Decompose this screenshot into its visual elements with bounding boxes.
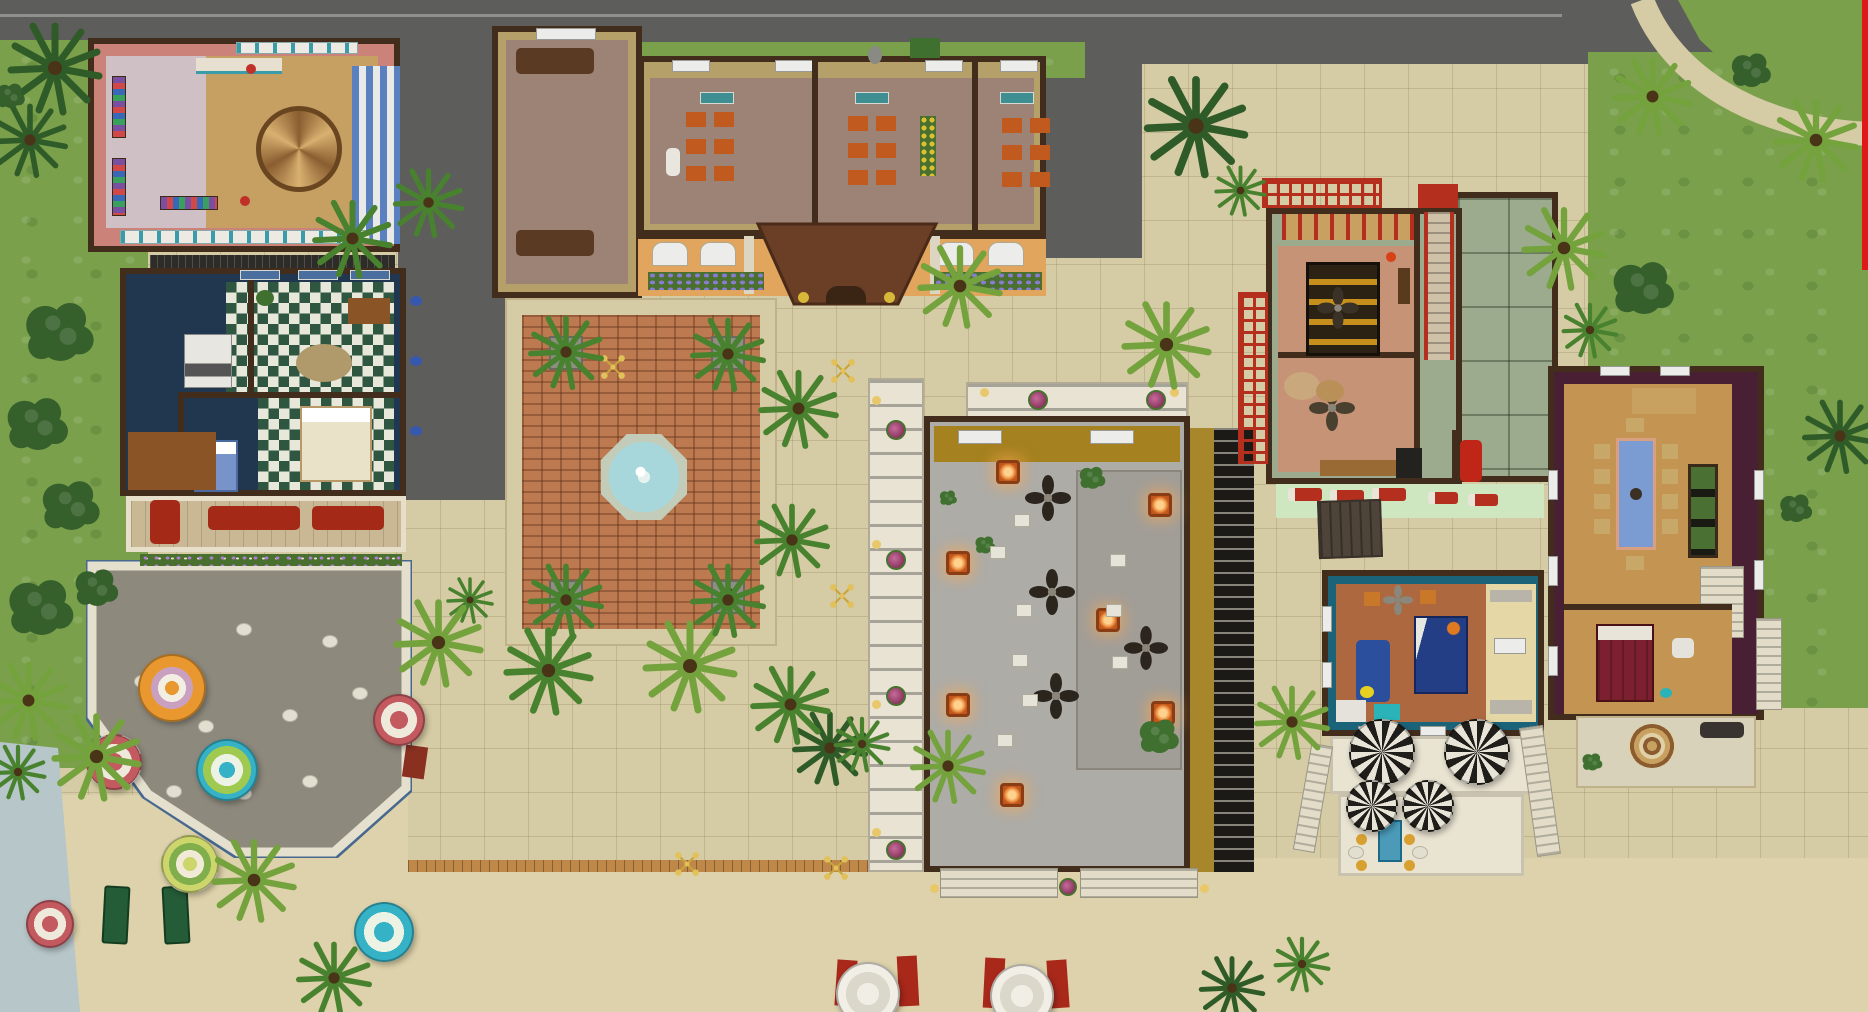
cafe-table[interactable]: [302, 775, 318, 788]
red-trellis[interactable]: [1262, 178, 1382, 208]
window: [775, 60, 813, 72]
flower-ball[interactable]: [1146, 390, 1166, 410]
gallery-chairs[interactable]: [876, 116, 896, 196]
window: [1754, 470, 1764, 500]
flower-ball[interactable]: [1028, 390, 1048, 410]
clothing-rack[interactable]: [112, 158, 126, 216]
dark-plant[interactable]: [1025, 475, 1071, 521]
teal-decor: [1660, 688, 1672, 698]
interior-staircase[interactable]: [1424, 212, 1454, 360]
flower-pot-yellow[interactable]: [798, 292, 809, 303]
palm-tree[interactable]: [1197, 953, 1267, 1012]
patio-umbrella-teal[interactable]: [196, 739, 258, 801]
dining-table[interactable]: [1012, 654, 1028, 667]
cafe-table[interactable]: [352, 687, 368, 700]
wave-rug: [1414, 616, 1468, 694]
entrance-steps[interactable]: [940, 868, 1058, 898]
palm-tree[interactable]: [391, 165, 466, 240]
dining-table[interactable]: [1110, 554, 1126, 567]
gold-lamppost[interactable]: [818, 850, 854, 886]
trash-can[interactable]: [868, 46, 882, 64]
round-rug: [1628, 724, 1676, 768]
picture-frames: [1688, 464, 1718, 558]
dining-table[interactable]: [1014, 514, 1030, 527]
exterior-staircase[interactable]: [1214, 428, 1254, 872]
white-armchair[interactable]: [1672, 638, 1694, 658]
potted-plant[interactable]: [936, 486, 960, 510]
flower-pot-yellow[interactable]: [884, 292, 895, 303]
gold-lamppost[interactable]: [824, 578, 860, 614]
bush[interactable]: [1131, 709, 1186, 764]
glow-floor-lamp[interactable]: [946, 693, 970, 717]
dining-chair[interactable]: [1626, 418, 1644, 432]
palm-tree[interactable]: [391, 595, 486, 690]
cafe-table[interactable]: [236, 623, 252, 636]
round-rug: [1284, 372, 1320, 400]
cabinet[interactable]: [1632, 388, 1696, 414]
flower-ball[interactable]: [886, 550, 906, 570]
bush[interactable]: [1600, 246, 1685, 331]
window: [1420, 726, 1446, 736]
orange-chair[interactable]: [1364, 592, 1380, 606]
road-center-line: [0, 14, 1562, 17]
gold-chair[interactable]: [1404, 860, 1415, 871]
flower-ball[interactable]: [886, 840, 906, 860]
courtyard-palm[interactable]: [526, 312, 606, 392]
gallery-chairs[interactable]: [1002, 118, 1022, 198]
flower-ball[interactable]: [886, 686, 906, 706]
blue-decor: [410, 426, 422, 436]
kitchen-counter[interactable]: [1320, 460, 1406, 476]
glow-floor-lamp[interactable]: [996, 460, 1020, 484]
gallery-chairs[interactable]: [1030, 118, 1050, 198]
palm-tree[interactable]: [1213, 163, 1268, 218]
bush[interactable]: [0, 76, 30, 116]
beach-lounger-green[interactable]: [162, 885, 191, 944]
dining-table[interactable]: [1022, 694, 1038, 707]
red-trellis[interactable]: [1238, 292, 1268, 464]
fridge[interactable]: [1396, 448, 1422, 478]
red-lamp[interactable]: [1386, 252, 1396, 262]
cafe-table[interactable]: [1348, 846, 1364, 859]
display-case[interactable]: [236, 42, 358, 54]
blue-decor: [410, 356, 422, 366]
palm-tree[interactable]: [1272, 934, 1332, 994]
palm-tree[interactable]: [756, 366, 841, 451]
palm-tree[interactable]: [748, 662, 833, 747]
path-light: [872, 700, 881, 709]
statue[interactable]: [666, 148, 680, 176]
interior-wall: [180, 392, 406, 398]
gold-chair[interactable]: [1356, 834, 1367, 845]
dark-roof: [1317, 499, 1383, 559]
courtyard-palm[interactable]: [526, 560, 606, 640]
path-light: [930, 884, 939, 893]
entrance-door[interactable]: [826, 286, 866, 304]
flower-stand[interactable]: [920, 116, 936, 176]
glow-floor-lamp[interactable]: [1000, 783, 1024, 807]
stair-hall-wall: [1414, 208, 1420, 484]
stained-window: [855, 92, 889, 104]
beam-pergola: [1282, 214, 1414, 240]
cafe-table[interactable]: [282, 709, 298, 722]
desk-white[interactable]: [1336, 700, 1366, 722]
dining-chair[interactable]: [1626, 556, 1644, 570]
window: [1754, 560, 1764, 590]
purple-flowers: [648, 272, 764, 290]
brown-bench[interactable]: [516, 48, 594, 74]
interior-wall: [248, 268, 254, 398]
sims-lot-overhead-view: [0, 0, 1868, 1012]
yellow-pillow: [1360, 686, 1374, 698]
glow-floor-lamp[interactable]: [1148, 493, 1172, 517]
flower-bed: [140, 554, 402, 566]
window: [672, 60, 710, 72]
vendor-cart[interactable]: [402, 745, 428, 780]
patio-umbrella-red[interactable]: [373, 694, 425, 746]
bush[interactable]: [1578, 748, 1606, 776]
patio-umbrella-red[interactable]: [26, 900, 74, 948]
dining-chairs[interactable]: [1594, 444, 1610, 544]
path-light: [872, 828, 881, 837]
gallery-chairs[interactable]: [714, 112, 734, 192]
house-plant[interactable]: [256, 290, 274, 306]
partition-wall: [812, 56, 818, 236]
maroon-bed[interactable]: [1596, 624, 1654, 702]
flower-ball[interactable]: [886, 420, 906, 440]
palm-tree[interactable]: [752, 500, 832, 580]
flower-pot-red[interactable]: [246, 64, 256, 74]
brown-bench[interactable]: [516, 230, 594, 256]
path-light: [1200, 884, 1209, 893]
arch-window: [536, 28, 596, 40]
window: [925, 60, 963, 72]
palm-tree[interactable]: [832, 714, 892, 774]
teal-table[interactable]: [1374, 704, 1400, 720]
dumpster[interactable]: [910, 38, 940, 58]
dining-table[interactable]: [1106, 604, 1122, 617]
red-armchair[interactable]: [150, 500, 180, 544]
gallery-chairs[interactable]: [686, 112, 706, 192]
arch-window: [652, 242, 688, 266]
dining-table[interactable]: [990, 546, 1006, 559]
path-light: [980, 388, 989, 397]
dark-plant[interactable]: [1124, 626, 1168, 670]
spiral-staircase[interactable]: [256, 106, 342, 192]
cafe-table[interactable]: [166, 785, 182, 798]
palm-tree[interactable]: [1119, 297, 1214, 392]
palm-tree[interactable]: [1800, 396, 1868, 476]
street-right: [1040, 60, 1142, 258]
palm-tree[interactable]: [1519, 203, 1609, 293]
palm-tree[interactable]: [908, 726, 988, 806]
stained-window: [700, 92, 734, 104]
palm-tree[interactable]: [0, 658, 71, 743]
glow-floor-lamp[interactable]: [946, 551, 970, 575]
patio-umbrella-orange[interactable]: [138, 654, 206, 722]
buffet-counter[interactable]: [958, 430, 1002, 444]
palm-tree[interactable]: [1771, 95, 1861, 185]
gallery-chairs[interactable]: [848, 116, 868, 196]
round-rug: [296, 344, 352, 382]
window: [1322, 606, 1332, 632]
gold-chair[interactable]: [1404, 834, 1415, 845]
gold-chair[interactable]: [1356, 860, 1367, 871]
cafe-table[interactable]: [1412, 846, 1428, 859]
red-roof-edge: [1418, 184, 1458, 208]
clothing-rack[interactable]: [112, 76, 126, 138]
vanity-desk[interactable]: [348, 298, 390, 324]
red-bench[interactable]: [208, 506, 300, 530]
window: [1548, 470, 1558, 500]
side-wall-mustard: [1190, 428, 1214, 872]
bush[interactable]: [0, 382, 79, 467]
zebra-umbrella[interactable]: [1402, 780, 1454, 832]
beach-lounger-red[interactable]: [897, 956, 920, 1007]
window: [1548, 646, 1558, 676]
beach-lounger-green[interactable]: [102, 885, 131, 944]
window: [1660, 366, 1690, 376]
buffet-counter[interactable]: [1090, 430, 1134, 444]
bathtub-red[interactable]: [1460, 440, 1482, 482]
orange-chair[interactable]: [1420, 590, 1436, 604]
arch-window: [700, 242, 736, 266]
shop-counter[interactable]: [196, 58, 282, 74]
blue-decor: [410, 296, 422, 306]
potted-plant[interactable]: [1074, 460, 1110, 496]
palm-tree[interactable]: [1252, 682, 1332, 762]
palm-tree[interactable]: [1610, 54, 1695, 139]
stove[interactable]: [184, 334, 232, 388]
garden-stairs[interactable]: [1756, 618, 1782, 710]
round-rug: [1316, 380, 1344, 402]
flower-ball[interactable]: [1059, 878, 1077, 896]
flower-pot-red[interactable]: [240, 196, 250, 206]
picture-frame: [1398, 268, 1410, 304]
bush[interactable]: [11, 285, 106, 380]
cafe-table[interactable]: [322, 635, 338, 648]
lot-boundary-red: [1862, 0, 1868, 270]
palm-tree[interactable]: [209, 835, 299, 925]
dining-table[interactable]: [997, 734, 1013, 747]
dark-sofa[interactable]: [1700, 722, 1744, 738]
window: [1600, 366, 1630, 376]
kitchen-counter[interactable]: [1490, 700, 1532, 714]
dining-table[interactable]: [1112, 656, 1128, 669]
partition-wall: [972, 56, 978, 236]
sink[interactable]: [1494, 638, 1526, 654]
bathroom-wall: [1452, 430, 1458, 484]
wood-cabinet[interactable]: [128, 432, 216, 490]
zebra-umbrella[interactable]: [1349, 719, 1415, 785]
sun-lounger-red[interactable]: [1428, 492, 1458, 504]
entrance-steps[interactable]: [1080, 868, 1198, 898]
dark-plant[interactable]: [1029, 569, 1075, 615]
cafe-table[interactable]: [198, 720, 214, 733]
sun-lounger-red[interactable]: [1468, 494, 1498, 506]
bush[interactable]: [66, 558, 126, 618]
double-bed[interactable]: [300, 406, 372, 482]
gold-lamppost[interactable]: [669, 846, 705, 882]
zebra-umbrella[interactable]: [1444, 719, 1510, 785]
window: [1548, 556, 1558, 586]
palm-tree[interactable]: [915, 241, 1005, 331]
dining-table[interactable]: [1016, 604, 1032, 617]
bush[interactable]: [30, 466, 110, 546]
zebra-umbrella[interactable]: [1346, 780, 1398, 832]
stained-window: [1000, 92, 1034, 104]
clothing-rack[interactable]: [160, 196, 218, 210]
sun-lounger-red[interactable]: [1288, 488, 1322, 501]
window: [240, 270, 280, 280]
ceiling-fan[interactable]: [1383, 585, 1413, 615]
bush[interactable]: [1723, 43, 1778, 98]
window: [1000, 60, 1038, 72]
palm-tree[interactable]: [310, 196, 395, 281]
dark-plant[interactable]: [1033, 673, 1079, 719]
palm-tree[interactable]: [294, 938, 374, 1012]
dining-chairs[interactable]: [1662, 444, 1678, 544]
centerpiece: [1630, 488, 1642, 500]
bush[interactable]: [1773, 486, 1818, 531]
fountain[interactable]: [601, 434, 687, 520]
palm-tree[interactable]: [0, 742, 48, 802]
ceiling-fan[interactable]: [1317, 287, 1359, 329]
path-light: [872, 540, 881, 549]
kitchen-counter[interactable]: [1490, 590, 1532, 602]
red-bench[interactable]: [312, 506, 384, 530]
path-light: [872, 396, 881, 405]
